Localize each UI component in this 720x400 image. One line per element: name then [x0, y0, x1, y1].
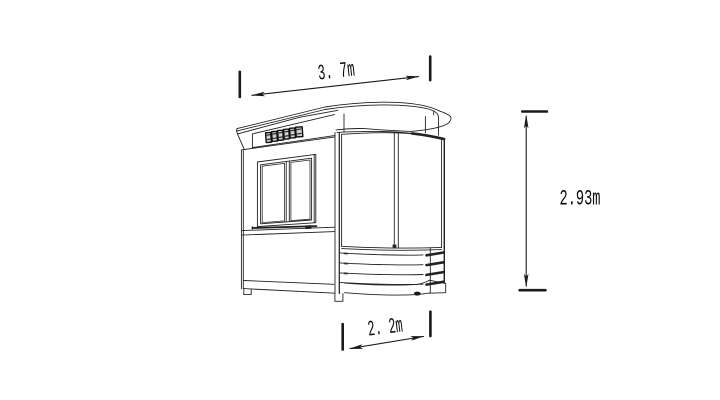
svg-text:3. 7m: 3. 7m	[317, 58, 356, 87]
svg-text:2.93m: 2.93m	[560, 188, 601, 212]
svg-text:2. 2m: 2. 2m	[367, 314, 405, 343]
